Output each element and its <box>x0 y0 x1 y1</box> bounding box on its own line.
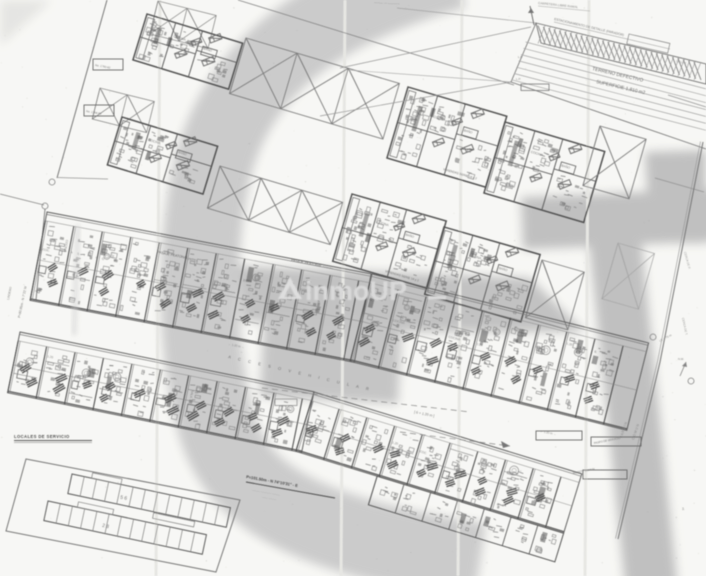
svg-text:inmoUP: inmoUP <box>305 276 407 306</box>
